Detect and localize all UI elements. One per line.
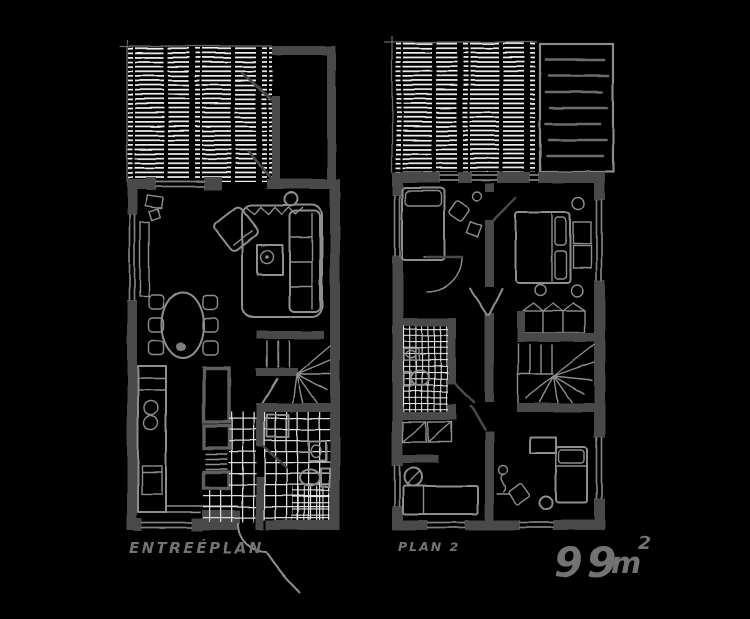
pillow	[555, 217, 566, 245]
pillow	[405, 191, 441, 206]
roof	[384, 36, 613, 172]
bathroom-entreplan	[256, 403, 330, 530]
chair	[203, 295, 218, 309]
tv-shelf	[145, 195, 162, 220]
entry-door-swing	[238, 524, 299, 592]
dining-area	[149, 292, 218, 358]
centerpiece	[176, 343, 186, 351]
floor-lamp	[285, 193, 298, 206]
bed-single-3	[556, 447, 587, 503]
wardrobe-peaked	[523, 303, 585, 333]
desk	[530, 437, 556, 453]
deck	[119, 40, 272, 182]
sofa	[290, 211, 320, 312]
chair	[149, 295, 164, 309]
plan2-label: PLAN 2	[398, 539, 460, 554]
floor-lamp-2	[497, 466, 509, 495]
entreplan-label: ENTREÉPLAN	[129, 538, 264, 557]
bedroom3-door-leaf	[471, 406, 485, 430]
bathroom2-door-leaf	[456, 384, 474, 402]
bedroom-2	[516, 197, 591, 335]
area-label: 99 m 2	[554, 532, 651, 587]
floor-plan-entreplan	[119, 40, 340, 592]
lamp	[535, 285, 546, 296]
oven	[142, 466, 162, 494]
stair-direction-arrows	[470, 289, 502, 315]
labels: ENTREÉPLAN PLAN 2 99 m 2	[129, 532, 651, 587]
bedroom-1	[402, 188, 482, 292]
pillow	[559, 450, 584, 463]
stool	[540, 497, 553, 510]
sink-bowl	[144, 416, 158, 430]
floor-plan-plan2	[384, 36, 613, 530]
bed-single	[402, 188, 444, 260]
pillow	[555, 251, 566, 279]
coffee-table	[257, 245, 283, 275]
window-left	[130, 215, 135, 300]
bedroom2-door-leaf	[494, 198, 516, 220]
chair	[203, 341, 218, 355]
door-arc	[427, 257, 462, 292]
window-top	[156, 182, 204, 187]
chair	[448, 200, 470, 222]
desk-chair	[508, 483, 530, 505]
bedside-lamp	[404, 468, 422, 486]
stairs-entreplan	[256, 331, 330, 412]
area-superscript: 2	[638, 532, 651, 554]
side-table	[466, 221, 481, 236]
lamp	[572, 197, 584, 209]
window-bottom	[142, 523, 191, 528]
lamp	[571, 285, 583, 297]
nightstand	[573, 246, 591, 268]
tall-cabinets	[204, 368, 229, 488]
hallway-tiles	[203, 412, 256, 522]
window-sill	[140, 222, 149, 296]
area-unit: m	[611, 546, 641, 580]
nightstand	[573, 222, 591, 244]
sink-bowl	[144, 401, 158, 415]
bed-double	[516, 212, 570, 283]
chair	[203, 318, 218, 332]
chair	[149, 341, 164, 355]
floor-plan-sheet: ENTREÉPLAN PLAN 2 99 m 2	[0, 0, 750, 619]
center-wall	[471, 183, 516, 520]
stairs-plan2	[517, 333, 595, 412]
roof-sparse-hatch	[540, 44, 613, 172]
bedroom-4	[497, 437, 587, 510]
roof-dense-hatch	[392, 42, 537, 172]
bedroom-3	[403, 468, 478, 514]
bed-single-2	[403, 486, 478, 514]
wall-lamp	[473, 192, 482, 201]
floor-plan-drawing: ENTREÉPLAN PLAN 2 99 m 2	[0, 0, 750, 619]
bathroom-plan2	[392, 318, 474, 420]
